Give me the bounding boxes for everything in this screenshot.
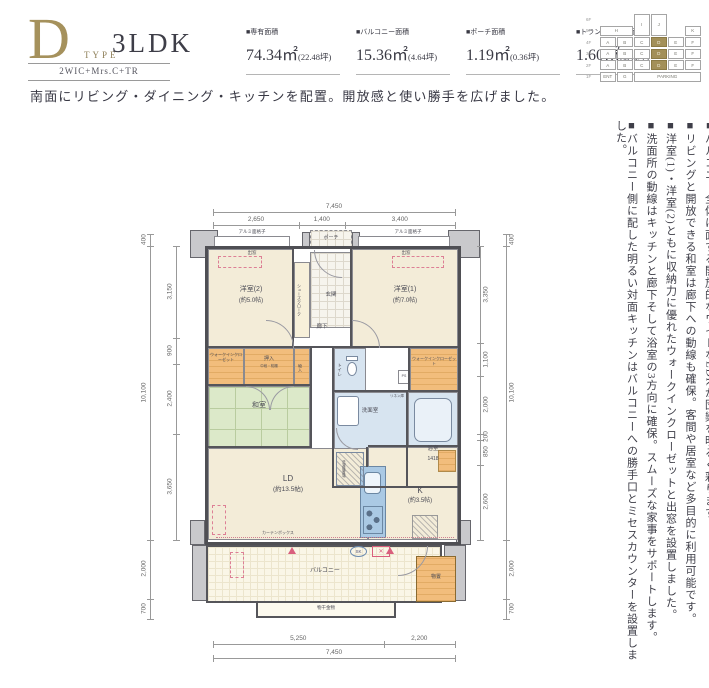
keyplan-cell: A bbox=[600, 49, 616, 59]
keyplan-floor-label: 6F bbox=[586, 17, 591, 22]
feature-bullet: ■洗面所の動線はキッチンと廊下そして浴室の3方向に確保。スムーズな家事をサポート… bbox=[645, 120, 656, 672]
label-wic-left: ウォークインクローゼット bbox=[210, 352, 242, 362]
label-western2: 洋室(2) bbox=[208, 286, 294, 295]
dimension-label: 2,650 bbox=[231, 216, 281, 223]
dimension-label: 7,450 bbox=[309, 649, 359, 656]
spec-value-row: 74.34㎡(22.48坪) bbox=[246, 41, 332, 65]
escape-hatch: ✕ bbox=[372, 546, 390, 557]
dimension-tick bbox=[147, 619, 154, 620]
dimension-tick bbox=[147, 599, 154, 600]
wall bbox=[208, 446, 310, 448]
label-toilet: トイレ bbox=[337, 352, 343, 388]
keyplan-cell: F bbox=[685, 37, 701, 47]
label-kitchen: K bbox=[388, 486, 452, 496]
dimension-tick bbox=[477, 540, 484, 541]
spec-value: 1.19㎡ bbox=[466, 47, 510, 64]
label-washitsu: 和室 bbox=[208, 402, 310, 411]
stove bbox=[363, 506, 383, 534]
dimension-label: 2,000 bbox=[141, 549, 148, 589]
dimension-line bbox=[480, 246, 481, 541]
label-curtain-box: カーテンボックス bbox=[248, 530, 308, 535]
spec-item: ■バルコニー面積15.36㎡(4.64坪) bbox=[356, 27, 450, 75]
dimension-tick bbox=[477, 246, 484, 247]
label-kitchen-size: (約3.5帖) bbox=[388, 498, 452, 506]
wall bbox=[406, 392, 408, 488]
header-rule-bottom bbox=[28, 80, 170, 81]
dimension-label: 2,400 bbox=[167, 378, 174, 418]
spec-value-row: 1.19㎡(0.36坪) bbox=[466, 41, 552, 65]
label-entry: 玄関 bbox=[310, 292, 352, 299]
dimension-line bbox=[506, 234, 507, 619]
curtain-box-line bbox=[216, 537, 454, 538]
dimension-tick bbox=[173, 246, 180, 247]
dimension-label: 3,150 bbox=[167, 271, 174, 311]
dimension-label: 1,100 bbox=[483, 339, 490, 379]
label-western1-size: (約7.0帖) bbox=[352, 298, 458, 306]
header-rule-top bbox=[28, 63, 170, 64]
keyplan-cell-highlight: D bbox=[651, 49, 667, 59]
keyplan-cell-highlight: D bbox=[651, 37, 667, 47]
dimension-tick bbox=[147, 246, 154, 247]
pillar bbox=[190, 520, 205, 545]
spec-label: ■バルコニー面積 bbox=[356, 27, 442, 37]
feature-list: ■バルコニー全体に面する開放的なワイドなLDKが団欒を明るく彩ります。■リビング… bbox=[606, 120, 709, 672]
wall bbox=[332, 348, 334, 488]
keyplan-cell: B bbox=[617, 37, 633, 47]
label-shoes-closet: シューズクローク bbox=[297, 266, 302, 334]
dimension-label: 700 bbox=[509, 588, 516, 628]
dimension-tick bbox=[455, 222, 456, 229]
keyplan-cell: F bbox=[685, 49, 701, 59]
dimension-tick bbox=[173, 338, 180, 339]
keyplan-cell: H bbox=[600, 26, 633, 36]
keyplan-cell: I bbox=[634, 14, 650, 36]
dimension-label: 3,400 bbox=[375, 216, 425, 223]
room-wic-right bbox=[410, 348, 458, 392]
dimension-tick bbox=[455, 655, 456, 662]
keyplan-cell: J bbox=[651, 14, 667, 36]
dimension-tick bbox=[345, 222, 346, 229]
dimension-tick bbox=[299, 222, 300, 229]
label-bay-window: 出窓 bbox=[380, 250, 432, 256]
ceiling-drop-outline bbox=[230, 552, 244, 578]
label-wic-right: ウォークインクローゼット bbox=[412, 356, 456, 366]
dimension-tick bbox=[213, 655, 214, 662]
spec-label: ■ポーチ面積 bbox=[466, 27, 552, 37]
dimension-label: 2,000 bbox=[509, 549, 516, 589]
spec-note: (4.64坪) bbox=[408, 52, 437, 62]
wall bbox=[208, 384, 310, 386]
dimension-label: 400 bbox=[141, 219, 148, 259]
dimension-label: 850 bbox=[483, 432, 490, 472]
dimension-label: 700 bbox=[141, 588, 148, 628]
dimension-label: 900 bbox=[167, 330, 174, 370]
dimension-label: 7,450 bbox=[309, 203, 359, 210]
label-laundry: 洗濯機置場 bbox=[342, 454, 346, 484]
dimension-tick bbox=[173, 364, 180, 365]
label-western1: 洋室(1) bbox=[352, 286, 458, 295]
ceiling-drop-outline bbox=[212, 505, 226, 535]
label-balcony: バルコニー bbox=[270, 568, 380, 576]
wall bbox=[408, 348, 410, 392]
label-laundry-pole: 物干金物 bbox=[296, 605, 356, 611]
spec-item: ■専有面積74.34㎡(22.48坪) bbox=[246, 27, 340, 75]
plan-subtitle: 2WIC+Mrs.C+TR bbox=[28, 66, 170, 76]
dimension-label: 1,400 bbox=[297, 216, 347, 223]
dimension-tick bbox=[147, 540, 154, 541]
dimension-line bbox=[213, 658, 455, 659]
keyplan-floor-label: 1F bbox=[586, 74, 591, 79]
dimension-line bbox=[176, 246, 177, 541]
label-porch: ポーチ bbox=[310, 235, 352, 241]
keyplan-cell: E bbox=[668, 49, 684, 59]
dimension-line bbox=[213, 225, 455, 226]
dimension-label: 3,350 bbox=[483, 274, 490, 314]
dimension-tick bbox=[213, 209, 214, 216]
keyplan-floor-label: 4F bbox=[586, 40, 591, 45]
label-trunk: 物置 bbox=[416, 574, 456, 580]
label-storage-small: 物入 bbox=[298, 354, 303, 382]
label-bath-size: 1418 bbox=[408, 456, 458, 462]
dimension-label: 2,600 bbox=[483, 482, 490, 522]
feature-bullet: ■リビングと開放できる和室は廊下への動線も確保。客間や居室など多目的に利用可能で… bbox=[684, 120, 695, 672]
label-hall: 廊下 bbox=[310, 324, 334, 331]
keyplan-cell: C bbox=[634, 37, 650, 47]
label-washroom: 洗面室 bbox=[340, 408, 400, 415]
keyplan-cell: C bbox=[634, 49, 650, 59]
feature-bullet: ■バルコニー全体に面する開放的なワイドなLDKが団欒を明るく彩ります。 bbox=[704, 120, 709, 672]
label-ld-size: (約13.5帖) bbox=[208, 486, 368, 494]
dimension-tick bbox=[503, 540, 510, 541]
slop-sink: SK bbox=[350, 546, 367, 557]
plan-type-letter: D bbox=[28, 10, 70, 68]
wall bbox=[366, 447, 368, 467]
dimension-label: 10,100 bbox=[509, 373, 516, 413]
toilet-tank bbox=[346, 356, 358, 361]
feature-bullet: ■洋室(1)・洋室(2)ともに収納力に優れたウォークインクローゼットと出窓を設置… bbox=[665, 120, 676, 672]
keyplan-cell: A bbox=[600, 37, 616, 47]
plan-name: 3LDK bbox=[112, 28, 193, 59]
label-oshiire: 押入 bbox=[244, 356, 294, 362]
keyplan-cell: PARKING bbox=[634, 72, 701, 82]
brochure-page: D TYPE 3LDK 2WIC+Mrs.C+TR ■専有面積74.34㎡(22… bbox=[0, 0, 709, 688]
dimension-line bbox=[213, 644, 455, 645]
keyplan-cell: C bbox=[634, 60, 650, 70]
label-grille: アルミ面格子 bbox=[222, 229, 282, 235]
spec-note: (22.48坪) bbox=[298, 52, 331, 62]
dimension-label: 2,200 bbox=[394, 635, 444, 642]
spec-value: 74.34㎡ bbox=[246, 47, 298, 64]
dimension-label: 5,250 bbox=[273, 635, 323, 642]
label-western2-size: (約5.0帖) bbox=[208, 298, 294, 306]
label-grille: アルミ面格子 bbox=[378, 229, 438, 235]
feature-bullet: ■バルコニー側に配した明るい対面キッチンはバルコニーへの勝手口とミセスカウンター… bbox=[615, 120, 637, 672]
ceiling-drop-outline bbox=[392, 256, 444, 268]
dimension-tick bbox=[173, 434, 180, 435]
keyplan-cell: E bbox=[668, 60, 684, 70]
label-bay-window: 出窓 bbox=[226, 250, 278, 256]
keyplan-cell-highlight: D bbox=[651, 60, 667, 70]
keyplan-floor-label: 3F bbox=[586, 51, 591, 56]
dimension-tick bbox=[455, 209, 456, 216]
spec-item: ■ポーチ面積1.19㎡(0.36坪) bbox=[466, 27, 560, 75]
floor-hatch bbox=[412, 515, 438, 539]
spec-label: ■専有面積 bbox=[246, 27, 332, 37]
dimension-tick bbox=[213, 222, 214, 229]
keyplan-cell: B bbox=[617, 49, 633, 59]
dimension-label: 400 bbox=[509, 219, 516, 259]
dimension-line bbox=[213, 212, 455, 213]
ceiling-drop-outline bbox=[218, 256, 262, 268]
spec-note: (0.36坪) bbox=[510, 52, 539, 62]
label-oshiire-sub: 中段・枕棚 bbox=[244, 364, 294, 368]
headline: 南面にリビング・ダイニング・キッチンを配置。開放感と使い勝手を広げました。 bbox=[30, 86, 555, 105]
dimension-tick bbox=[213, 641, 214, 648]
keyplan-cell: ENT bbox=[600, 72, 616, 82]
dimension-tick bbox=[455, 641, 456, 648]
label-ps: PS bbox=[398, 374, 410, 378]
dimension-label: 10,100 bbox=[141, 373, 148, 413]
spec-value: 15.36㎡ bbox=[356, 47, 408, 64]
wall bbox=[310, 348, 312, 448]
dimension-label: 3,650 bbox=[167, 467, 174, 507]
spec-value-row: 15.36㎡(4.64坪) bbox=[356, 41, 442, 65]
label-bath: 浴室 bbox=[408, 446, 458, 453]
keyplan-cell: A bbox=[600, 60, 616, 70]
dimension-line bbox=[150, 234, 151, 619]
keyplan-cell: E bbox=[668, 37, 684, 47]
keyplan-cell: G bbox=[617, 72, 633, 82]
bathtub bbox=[414, 398, 452, 442]
dimension-tick bbox=[147, 234, 154, 235]
toilet-bowl bbox=[347, 362, 357, 376]
dimension-tick bbox=[384, 641, 385, 648]
laundry-hook bbox=[288, 547, 296, 554]
dimension-tick bbox=[173, 540, 180, 541]
label-linen: リネン庫 bbox=[384, 394, 410, 398]
keyplan-cell: K bbox=[685, 26, 701, 36]
keyplan-cell: B bbox=[617, 60, 633, 70]
keyplan-floor-label: 2F bbox=[586, 63, 591, 68]
keyplan-cell: F bbox=[685, 60, 701, 70]
wall bbox=[334, 390, 458, 392]
keyplan-floor-label: 5F bbox=[586, 28, 591, 33]
